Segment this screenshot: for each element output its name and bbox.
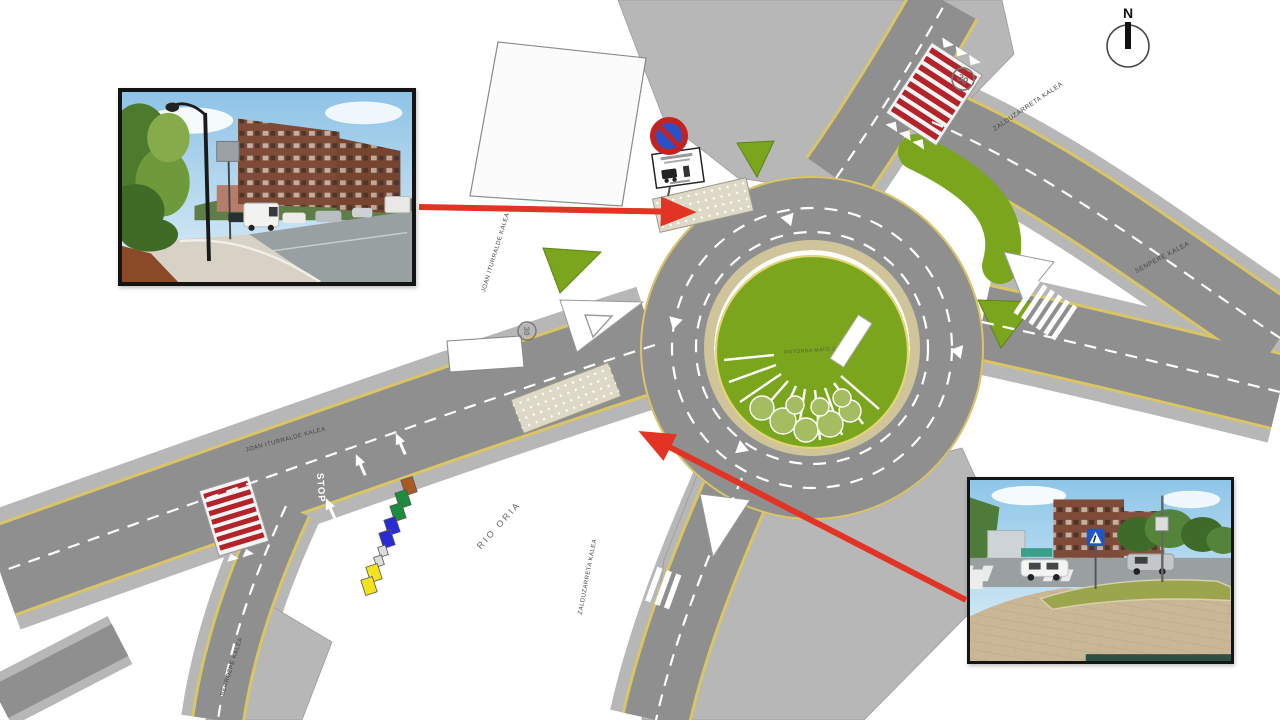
no-parking-sign-icon — [653, 120, 685, 152]
label-zalduzarreta-south: ZALDUZARRETA KALEA — [578, 538, 599, 615]
north-arrow-icon: N — [1107, 5, 1149, 67]
tow-away-sign-icon — [652, 148, 704, 188]
label-rio-oria: RIO ORIA — [475, 499, 523, 551]
railing — [1086, 654, 1231, 661]
svg-text:30: 30 — [522, 326, 531, 336]
compass-n-label: N — [1123, 5, 1133, 21]
roundabout-plan-canvas: 30 30 STOP N ZALDUZARRETA KALEA SENPERE … — [0, 0, 1280, 720]
photo-inset-street-view-south — [967, 477, 1234, 664]
label-joan-iturralde-upper: JOAN ITURRALDE KALEA — [481, 212, 511, 293]
stop-road-marking: STOP — [314, 473, 327, 503]
photo-inset-street-view-north — [118, 88, 416, 286]
